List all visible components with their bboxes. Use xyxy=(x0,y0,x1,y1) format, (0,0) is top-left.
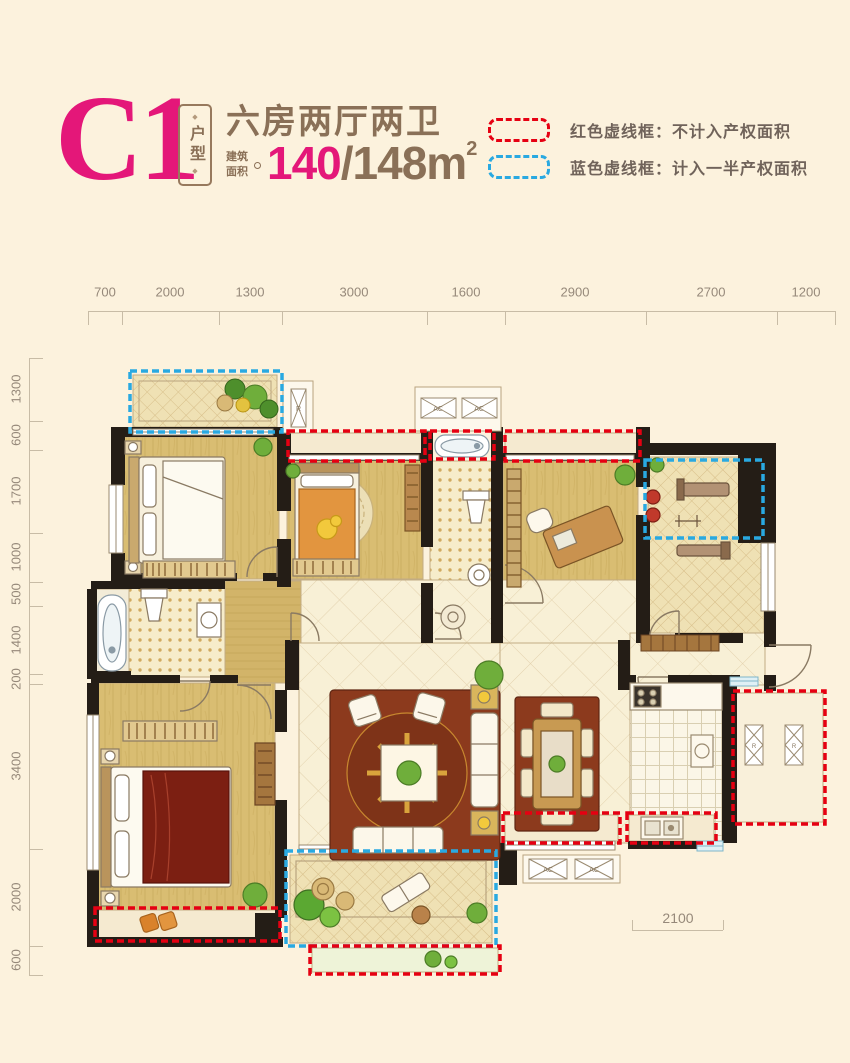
plant-icon xyxy=(286,464,300,478)
shoe-cabinet xyxy=(641,635,719,651)
dim-label: 1700 xyxy=(9,477,24,506)
area-label: 建筑 面积 xyxy=(226,150,248,180)
legend: 红色虚线框：不计入产权面积 蓝色虚线框：计入一半产权面积 xyxy=(488,118,808,192)
ruler-tick xyxy=(29,533,43,534)
legend-row-blue: 蓝色虚线框：计入一半产权面积 xyxy=(488,155,808,179)
dim-label: 600 xyxy=(9,949,24,971)
duck-head xyxy=(331,516,342,527)
ruler-tick xyxy=(29,606,43,607)
bookshelf xyxy=(293,559,359,576)
ruler-tick xyxy=(29,975,43,976)
weight-bench xyxy=(683,483,729,496)
ruler-tick xyxy=(505,311,506,325)
dim-label: 1200 xyxy=(792,285,821,300)
ac-niche-top-left: R xyxy=(283,381,313,433)
window-bedroom-1 xyxy=(109,485,123,553)
bench-end xyxy=(677,479,684,500)
ac-niche-top: AC AC xyxy=(415,387,501,431)
legend-blue-label: 蓝色虚线框：计入一半产权面积 xyxy=(570,155,808,179)
exercise-ball-icon xyxy=(646,508,660,522)
dim-label: 1300 xyxy=(9,375,24,404)
plant-icon xyxy=(236,398,250,412)
dim-label: 3000 xyxy=(340,285,369,300)
bed-headboard xyxy=(295,463,359,473)
svg-text:AC: AC xyxy=(589,867,599,874)
blue-dashed-box-icon xyxy=(488,155,550,179)
plant-icon xyxy=(243,883,267,907)
plan-type-tag: ◆ 户型 ◆ xyxy=(178,104,212,186)
area-secondary: /148m xyxy=(341,140,466,186)
ruler-tick xyxy=(29,946,43,947)
dim-label: 2900 xyxy=(561,285,590,300)
wardrobe xyxy=(255,743,275,805)
plant-icon xyxy=(445,956,457,968)
ruler-tick xyxy=(29,849,43,850)
drain-icon xyxy=(669,826,674,831)
bed-headboard xyxy=(101,767,111,887)
plan-code: C1 xyxy=(55,78,196,200)
pillow xyxy=(115,775,129,821)
floor-plan-page: C1 ◆ 户型 ◆ 六房两厅两卫 建筑 面积 140 /148m 2 红色虚线框… xyxy=(0,0,850,1063)
sink xyxy=(468,564,490,586)
lamp-icon xyxy=(105,893,115,903)
rattan-chair xyxy=(336,892,354,910)
dim-label: 1600 xyxy=(452,285,481,300)
svg-text:AC: AC xyxy=(543,867,553,874)
svg-text:R: R xyxy=(752,744,757,750)
diamond-icon: ◆ xyxy=(192,167,197,177)
dim-label: 1400 xyxy=(9,626,24,655)
sofa xyxy=(471,713,498,807)
ruler-tick xyxy=(29,450,43,451)
ac-unit-icon: AC xyxy=(462,398,497,418)
plant-icon xyxy=(254,438,272,456)
dim-label: 600 xyxy=(9,424,24,446)
toilet-tank xyxy=(141,589,167,598)
ruler-tick xyxy=(646,311,647,325)
plant-icon xyxy=(320,907,340,927)
burner-icon xyxy=(650,699,656,705)
window-master-bedroom xyxy=(87,715,99,870)
ruler-tick xyxy=(427,311,428,325)
ac-unit-icon: AC xyxy=(575,859,613,879)
drain-icon xyxy=(109,647,115,653)
plant-icon xyxy=(467,903,487,923)
ac-niche-dining: AC AC xyxy=(523,855,620,883)
exercise-ball-icon xyxy=(646,490,660,504)
svg-text:R: R xyxy=(792,744,797,750)
toilet-tank xyxy=(463,491,489,500)
pillow xyxy=(301,475,353,487)
area-superscript: 2 xyxy=(466,138,477,161)
ruler-tick xyxy=(29,358,43,359)
entry-furniture xyxy=(641,635,719,651)
pillow xyxy=(115,831,129,877)
centerpiece-plant-icon xyxy=(549,756,565,772)
bookshelf xyxy=(507,469,521,587)
plant-icon xyxy=(615,465,635,485)
sink-basin xyxy=(645,821,660,835)
table-plant-icon xyxy=(397,761,421,785)
pillow xyxy=(143,513,156,555)
dim-label: 200 xyxy=(9,668,24,690)
ruler-line xyxy=(88,311,835,312)
dim-label: 2000 xyxy=(9,883,24,912)
plant-icon xyxy=(260,400,278,418)
ruler-tick xyxy=(122,311,123,325)
legend-row-red: 红色虚线框：不计入产权面积 xyxy=(488,118,808,142)
ruler-tick xyxy=(88,311,89,325)
svg-text:AC: AC xyxy=(433,406,443,413)
dim-label: 1300 xyxy=(236,285,265,300)
living-room-furniture xyxy=(330,661,503,860)
plan-type-tag-text: 户型 xyxy=(183,125,207,165)
ruler-tick xyxy=(29,582,43,583)
plant-icon xyxy=(425,951,441,967)
dim-label: 2700 xyxy=(697,285,726,300)
dining-room-furniture xyxy=(515,697,599,831)
weight-bench xyxy=(677,545,725,556)
sofa xyxy=(353,827,443,853)
area-primary: 140 xyxy=(267,140,341,186)
plant-icon xyxy=(475,661,503,689)
floor-bay-master xyxy=(97,910,278,939)
drain-icon xyxy=(475,444,480,449)
dining-chair xyxy=(521,769,533,797)
ac-unit-icon: AC xyxy=(421,398,456,418)
area-row: 建筑 面积 140 /148m 2 xyxy=(226,140,477,186)
lamp-icon xyxy=(478,817,490,829)
laundry-basin xyxy=(441,605,465,629)
ruler-tick xyxy=(29,684,43,685)
dot-separator-icon xyxy=(254,162,261,169)
dim-label: 700 xyxy=(94,285,116,300)
ruler-tick xyxy=(835,311,836,325)
dining-chair xyxy=(581,769,593,797)
svg-text:AC: AC xyxy=(474,406,484,413)
page-title: 六房两厅两卫 xyxy=(226,94,442,143)
dining-chair xyxy=(581,729,593,757)
burner-icon xyxy=(650,690,656,696)
floor-planting-strip xyxy=(312,948,498,972)
red-dashed-box-icon xyxy=(488,118,550,142)
legend-red-label: 红色虚线框：不计入产权面积 xyxy=(570,118,791,142)
dining-chair xyxy=(521,729,533,757)
ruler-tick xyxy=(29,674,43,675)
burner-icon xyxy=(638,699,644,705)
burner-icon xyxy=(638,690,644,696)
lamp-icon xyxy=(105,751,115,761)
ruler-tick xyxy=(29,421,43,422)
round-table xyxy=(412,906,430,924)
ruler-tick xyxy=(219,311,220,325)
dim-label: 3400 xyxy=(9,752,24,781)
floor-plan-drawing: AC AC R AC xyxy=(85,345,835,995)
lamp-icon xyxy=(478,691,490,703)
lamp-icon xyxy=(129,443,138,452)
ac-unit-icon: AC xyxy=(529,859,567,879)
ruler-tick xyxy=(282,311,283,325)
svg-text:R: R xyxy=(296,406,301,413)
dim-label: 1000 xyxy=(9,543,24,572)
rattan-chair xyxy=(312,878,334,900)
kitchen-cabinet xyxy=(691,735,713,767)
window-gym xyxy=(761,543,775,611)
ruler-tick xyxy=(777,311,778,325)
dim-label: 500 xyxy=(9,583,24,605)
bed-headboard xyxy=(129,457,139,563)
lamp-icon xyxy=(129,563,138,572)
blanket xyxy=(163,461,223,559)
dim-label: 2000 xyxy=(156,285,185,300)
bookshelf xyxy=(143,561,235,578)
dining-chair xyxy=(541,703,573,717)
pillow xyxy=(143,465,156,507)
bench-end xyxy=(721,542,730,559)
diamond-icon: ◆ xyxy=(192,113,197,123)
rattan-chair xyxy=(217,395,233,411)
dining-chair xyxy=(541,811,573,825)
